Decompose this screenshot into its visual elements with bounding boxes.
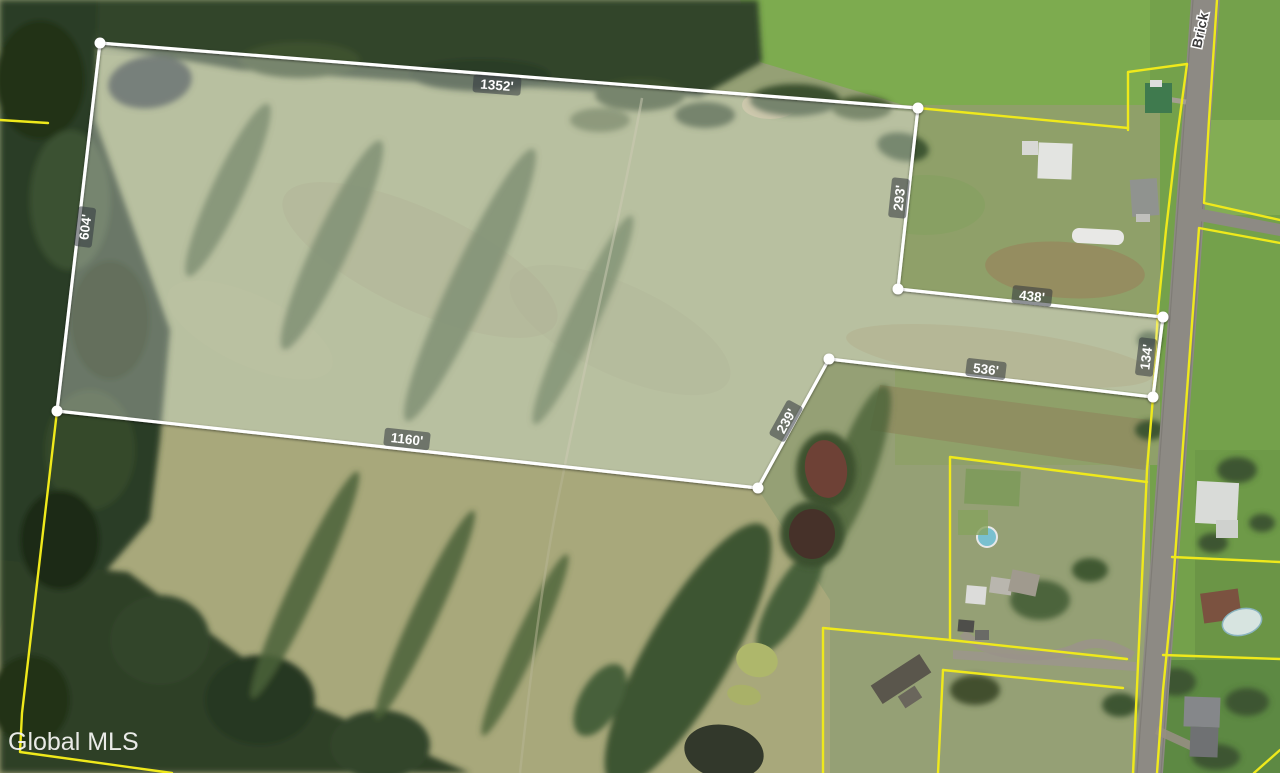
parcel-vertex-handle[interactable] xyxy=(1158,312,1169,323)
dimension-text: 134' xyxy=(1137,343,1155,370)
parcel-vertex-handle[interactable] xyxy=(753,483,764,494)
house-gray xyxy=(1130,178,1160,217)
tree-cluster xyxy=(1217,457,1257,483)
tree-cluster xyxy=(950,675,1000,705)
dimension-text: 604' xyxy=(76,213,94,240)
house-trim xyxy=(1150,80,1162,87)
garden-plot xyxy=(964,469,1021,507)
dimension-text: 438' xyxy=(1018,288,1045,306)
shed-dark xyxy=(958,619,975,632)
parcel-vertex-handle[interactable] xyxy=(1148,392,1159,403)
parcel-vertex-handle[interactable] xyxy=(913,103,924,114)
barn xyxy=(1037,142,1072,179)
tree-cluster xyxy=(1225,688,1269,716)
aerial-map-canvas[interactable]: 1352' 604' 293' 438' 134' 536' 239' 116 xyxy=(0,0,1280,773)
house-white-roof xyxy=(1195,481,1239,525)
shed xyxy=(965,585,986,605)
field-patch xyxy=(1205,120,1280,215)
tree-cluster xyxy=(20,490,100,590)
dimension-label-top: 1352' xyxy=(472,74,521,96)
map-image: 1352' 604' 293' 438' 134' 536' 239' 116 xyxy=(0,0,1280,773)
shed xyxy=(1022,141,1038,155)
parcel-vertex-handle[interactable] xyxy=(893,284,904,295)
garden-plot xyxy=(958,510,988,535)
tree-cluster xyxy=(1072,558,1108,582)
dimension-text: 536' xyxy=(972,360,999,378)
dimension-text: 1352' xyxy=(480,77,514,95)
trailer xyxy=(1072,228,1125,246)
tree-cluster xyxy=(1102,693,1138,717)
house-green-roof xyxy=(1145,83,1172,113)
house-annex xyxy=(1216,520,1238,538)
parcel-vertex-handle[interactable] xyxy=(824,354,835,365)
pond-dark xyxy=(789,509,835,559)
dimension-text: 293' xyxy=(891,184,909,211)
house-gray xyxy=(1189,727,1218,758)
parcel-vertex-handle[interactable] xyxy=(52,406,63,417)
tree-cluster xyxy=(110,595,210,685)
watermark-global-mls: Global MLS xyxy=(8,728,139,756)
parcel-vertex-handle[interactable] xyxy=(95,38,106,49)
tree-cluster xyxy=(1249,514,1275,532)
porch xyxy=(1136,214,1150,222)
shed-dark xyxy=(975,630,989,640)
house-gray xyxy=(1183,696,1220,727)
